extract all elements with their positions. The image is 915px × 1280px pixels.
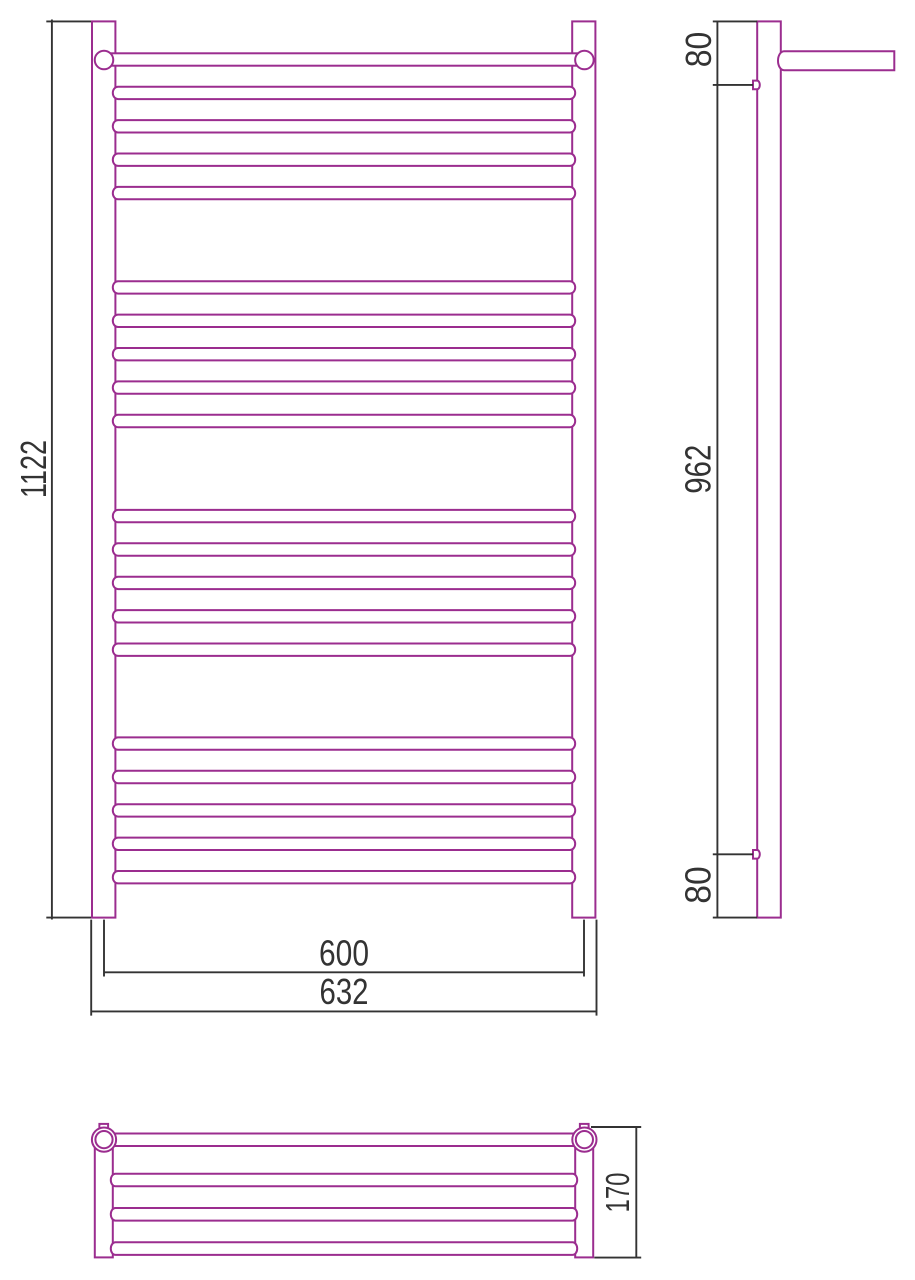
svg-text:80: 80	[678, 866, 719, 904]
svg-text:80: 80	[678, 32, 719, 68]
svg-text:632: 632	[320, 971, 369, 1012]
svg-text:600: 600	[319, 933, 369, 974]
svg-text:962: 962	[677, 445, 718, 494]
svg-text:1122: 1122	[13, 440, 54, 498]
svg-text:170: 170	[600, 1173, 637, 1213]
